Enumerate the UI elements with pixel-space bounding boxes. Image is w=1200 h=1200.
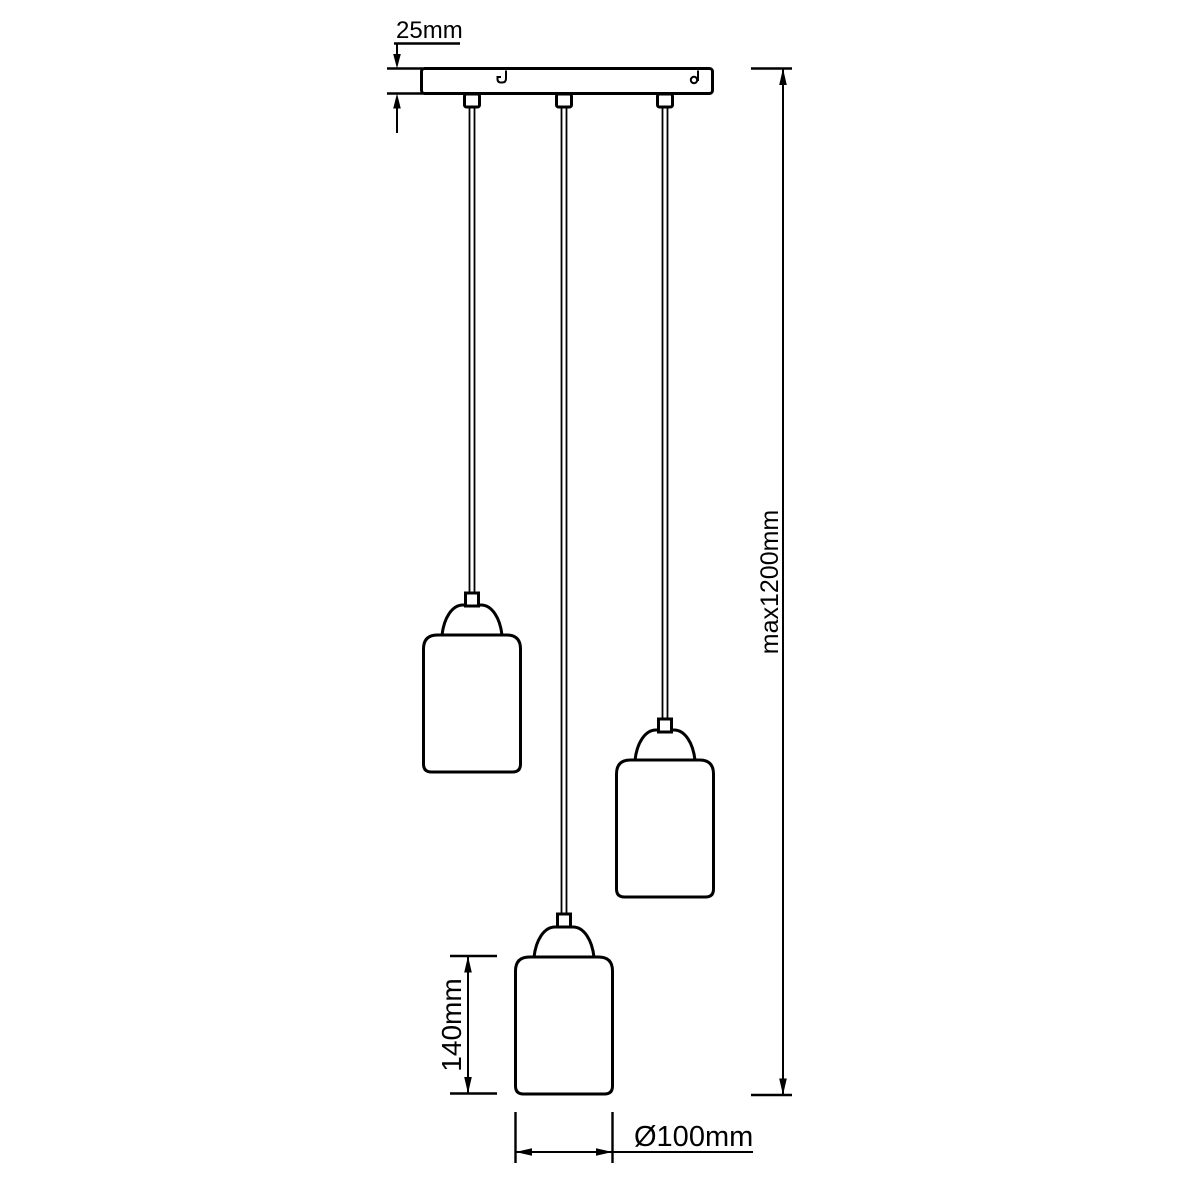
- ceiling-canopy: [422, 69, 713, 108]
- arrow-up-icon: [779, 69, 787, 86]
- arrow-up-icon: [393, 94, 401, 109]
- dimension-max-height: max1200mm: [751, 69, 792, 1096]
- pendant-middle: [516, 914, 613, 1094]
- pendant-left: [424, 593, 521, 772]
- cable-gland-right: [658, 94, 673, 107]
- shade-height-label: 140mm: [436, 978, 467, 1071]
- canopy-depth-label: 25mm: [396, 17, 463, 44]
- arrow-left-icon: [516, 1148, 533, 1156]
- cable-middle: [562, 108, 567, 914]
- pendant-lamp-technical-drawing: 25mm max1200mm 140mm Ø100mm: [0, 0, 1200, 1200]
- dimension-shade-height: 140mm: [436, 956, 497, 1094]
- arrow-down-icon: [393, 54, 401, 69]
- lamp-shade-middle: [516, 957, 613, 1094]
- socket-cover-middle: [534, 927, 594, 957]
- shade-diameter-label: Ø100mm: [634, 1121, 753, 1153]
- max-height-label: max1200mm: [756, 510, 784, 655]
- arrow-down-icon: [464, 1077, 472, 1094]
- cord-connector-left: [466, 593, 479, 606]
- socket-cover-right: [635, 730, 695, 760]
- socket-cover-left: [442, 605, 502, 635]
- arrow-up-icon: [464, 956, 472, 973]
- diagram-canvas: 25mm max1200mm 140mm Ø100mm: [0, 0, 1200, 1200]
- canopy-bar: [422, 69, 713, 94]
- cord-connector-right: [659, 719, 672, 732]
- arrow-right-icon: [596, 1148, 613, 1156]
- lamp-shade-right: [617, 760, 714, 897]
- cable-left: [470, 108, 475, 594]
- cable-gland-middle: [557, 94, 572, 107]
- pendant-right: [617, 719, 714, 897]
- cord-connector-middle: [558, 914, 571, 927]
- cable-gland-left: [465, 94, 480, 107]
- dimension-shade-diameter: Ø100mm: [516, 1112, 754, 1163]
- cable-right: [663, 108, 668, 720]
- lamp-shade-left: [424, 635, 521, 772]
- arrow-down-icon: [779, 1079, 787, 1096]
